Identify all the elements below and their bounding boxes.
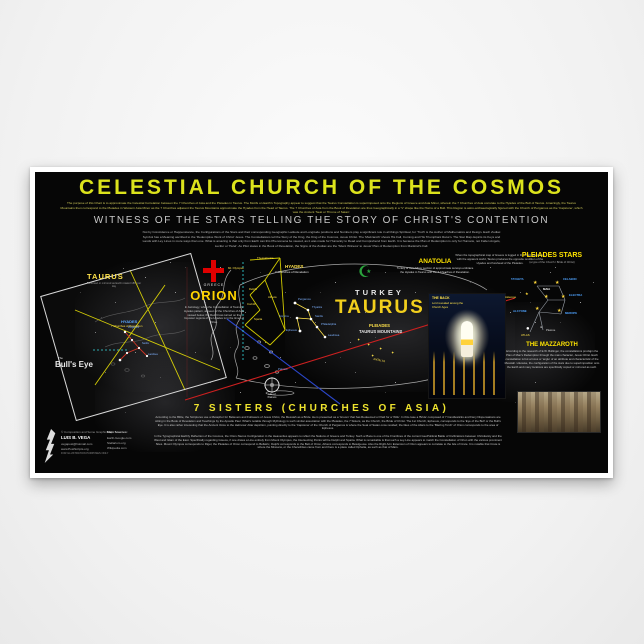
- pleiad-label: ELECTRA: [569, 294, 582, 297]
- pleione-star-icon: ●: [540, 326, 542, 330]
- hyades-label: HYADES: [285, 265, 303, 270]
- poster: CELESTIAL CHURCH OF THE COSMOS The purpo…: [30, 167, 613, 478]
- seven-sisters-paragraph-2: In the Typographical Earthly Reflection …: [153, 435, 503, 450]
- anatolia-text: Turkey or Asia Minor section of approxim…: [395, 267, 475, 275]
- christ-among-candlesticks-image: THE BACK Lord revealed among the Church …: [428, 293, 506, 399]
- pleiades-region-label: PLEIADES: [369, 324, 390, 328]
- atlas-star-icon: ●: [526, 326, 530, 332]
- pleiades-panel-subtitle: (a type of the Church / Bride of Christ): [499, 261, 605, 264]
- pleiad-label: Pleione: [546, 329, 555, 332]
- christ-figure: [461, 321, 473, 357]
- pleiad-star-icon: ★: [561, 295, 565, 300]
- pleiad-label: TAYGETA: [511, 278, 524, 281]
- place-label: Athens: [268, 296, 277, 299]
- pleiades-stars-panel: PLEIADES STARS (a type of the Church / B…: [499, 252, 605, 340]
- source-item: Stellarium.org: [107, 442, 126, 445]
- pleiad-star-icon: ★: [535, 307, 539, 312]
- credit-copyright: © Composition and Some Graphics by: [61, 431, 112, 434]
- pleiad-label: MEROPE: [565, 312, 577, 315]
- pleiad-star-icon: ★: [525, 292, 529, 296]
- poster-print-area: CELESTIAL CHURCH OF THE COSMOS The purpo…: [35, 172, 608, 473]
- pleiad-label: ATLAS: [521, 334, 530, 337]
- inset-church-label: Sardis: [142, 343, 149, 346]
- credits-block: © Composition and Some Graphics by LUIS …: [43, 427, 173, 471]
- seven-sisters-paragraph-1: According to the Bible, the Scriptures u…: [153, 416, 503, 431]
- church-label: Sardis: [315, 315, 323, 318]
- church-label: Pergamos: [298, 298, 311, 301]
- pleiades-chart: ★ ★ ★ ★ ★ ★ ★ ● ● TAYGETA CELAENO ELECTR…: [499, 266, 605, 340]
- pleiad-star-icon: ★: [557, 309, 561, 314]
- patmos-label: Patmos: [278, 368, 287, 371]
- pleiad-star-icon: ★: [555, 281, 559, 286]
- inset-caption: Reversed or mirrored as Earth rotated 18…: [85, 283, 143, 288]
- church-label: Laodicea: [328, 334, 339, 337]
- church-label: Smyrna: [279, 315, 289, 318]
- pleiad-label: CELAENO: [563, 278, 577, 281]
- place-label: Delphi: [249, 288, 257, 291]
- place-label: Thessalonica: [257, 257, 273, 260]
- church-label: Philadelphia: [321, 323, 336, 326]
- church-label: Thyatira: [312, 306, 322, 309]
- pleiad-label: Asterope: [505, 296, 516, 299]
- turkey-label: TURKEY: [355, 289, 404, 297]
- inset-church-label: Laodicea: [148, 354, 158, 357]
- pleiad-star-icon: ★: [544, 295, 548, 300]
- sources-title: Main Sources:: [107, 431, 128, 434]
- taurus-label: TAURUS: [335, 298, 425, 318]
- credit-disclaimer: FOR ILLUSTRATION PURPOSES ONLY: [61, 453, 108, 456]
- inset-church-label: Pergamos: [128, 327, 139, 330]
- inset-title: TAURUS: [87, 273, 124, 281]
- source-item: Wikipedia.com: [107, 447, 127, 450]
- taurus-mountains-label: TAURUS MOUNTAINS: [359, 330, 402, 334]
- mountain-star-icon: ✦: [391, 351, 394, 355]
- credit-email: vegapost@hotmail.com: [61, 443, 92, 446]
- credit-name: LUIS B. VEGA: [61, 436, 90, 441]
- mountain-star-icon: ✦: [357, 338, 360, 342]
- pleiad-label: MAIA: [543, 288, 550, 291]
- mountain-star-icon: ✦: [367, 343, 370, 347]
- orion-paragraph: In Astrology, when the Constellation of …: [183, 306, 245, 325]
- church-label: Ephesus: [286, 329, 297, 332]
- place-label: Sparta: [254, 318, 262, 321]
- source-item: Earth-Google.com: [107, 437, 131, 440]
- pleiad-label: ALCYONE: [513, 310, 527, 313]
- credit-website: www.PostScripts.org: [61, 448, 89, 451]
- place-label: Corinth: [247, 303, 256, 306]
- mazzaroth-title: THE MAZZAROTH: [499, 342, 605, 348]
- mazzaroth-text: According to the research of E.W. Bullin…: [503, 350, 601, 370]
- pleiades-panel-title: PLEIADES STARS: [499, 252, 605, 259]
- compass-caption: Isle of Patmos: [263, 394, 281, 399]
- bulls-eye-label: Bull's Eye: [55, 361, 93, 369]
- place-label: Mt. Olympus: [228, 267, 244, 270]
- crescent-star-icon: ☪: [358, 265, 372, 281]
- pleiad-star-icon: ★: [533, 281, 537, 286]
- christ-caption: Lord revealed among the Church Ages: [432, 302, 464, 309]
- red-cross-icon: [203, 268, 224, 273]
- seven-candlesticks: [433, 351, 501, 395]
- hyades-sub-label: 7 Churches of Revelation: [275, 271, 309, 274]
- publisher-logo: [43, 429, 57, 463]
- seven-sisters-heading: 7 SISTERS (CHURCHES OF ASIA): [35, 403, 608, 414]
- orion-label: ORION: [189, 289, 239, 303]
- mountain-star-icon: ✦: [379, 347, 382, 351]
